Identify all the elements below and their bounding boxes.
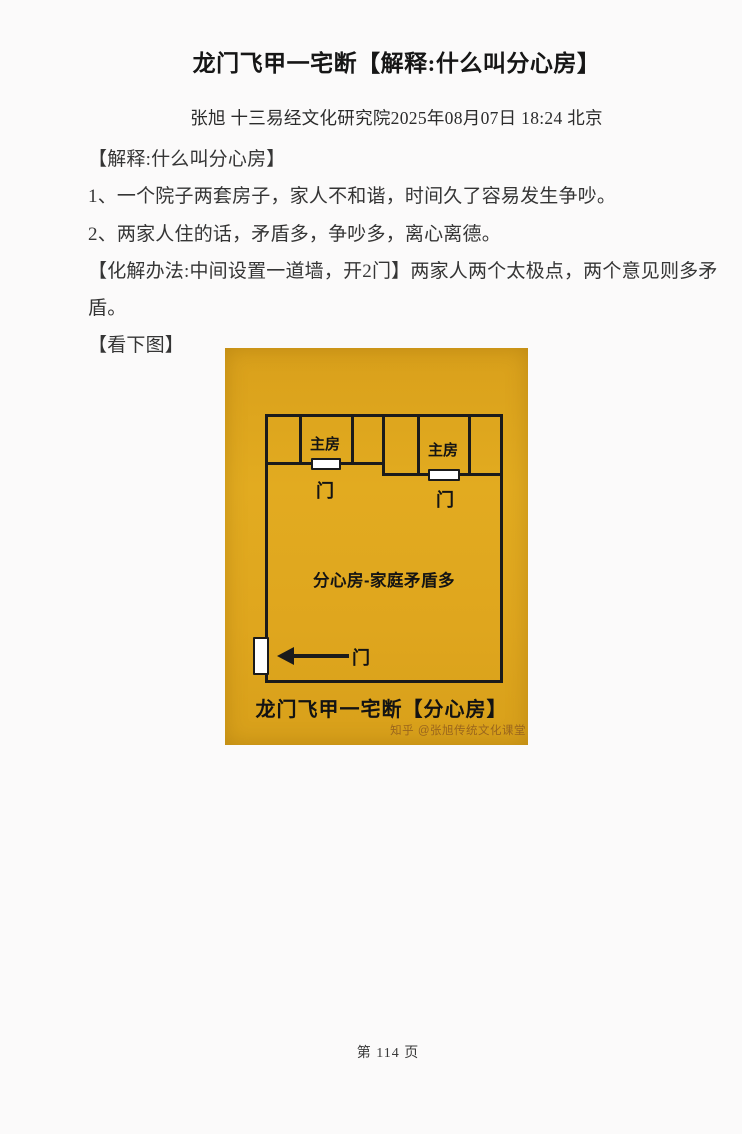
door-marker-right-room: [428, 469, 460, 481]
door-label-left: 门: [313, 477, 337, 503]
wall-center-divider: [382, 417, 385, 476]
entrance-arrow-icon: [277, 647, 294, 665]
byline: 张旭 十三易经文化研究院2025年08月07日 18:24 北京: [88, 105, 705, 130]
body-line-1: 1、一个院子两套房子，家人不和谐，时间久了容易发生争吵。: [88, 178, 718, 215]
body-text: 【解释:什么叫分心房】 1、一个院子两套房子，家人不和谐，时间久了容易发生争吵。…: [88, 141, 718, 365]
door-label-main: 门: [349, 644, 373, 670]
body-line-remedy: 【化解办法:中间设置一道墙，开2门】两家人两个太极点，两个意见则多矛盾。: [88, 253, 718, 328]
room-label-right: 主房: [416, 439, 470, 460]
courtyard-label: 分心房-家庭矛盾多: [265, 567, 503, 591]
body-line-2: 2、两家人住的话，矛盾多，争吵多，离心离德。: [88, 216, 718, 253]
door-marker-left-room: [311, 458, 341, 470]
diagram-card: 主房 主房 门 门 分心房-家庭矛盾多 门 龙门飞甲一宅断【分心房】 知乎 @张…: [225, 348, 528, 745]
watermark-text: 知乎 @张旭传统文化课堂: [390, 722, 526, 738]
page-number: 第 114 页: [70, 1042, 706, 1062]
diagram-caption: 龙门飞甲一宅断【分心房】: [235, 693, 528, 722]
body-line-explanation-header: 【解释:什么叫分心房】: [88, 141, 718, 178]
document-page: 龙门飞甲一宅断【解释:什么叫分心房】 张旭 十三易经文化研究院2025年08月0…: [0, 0, 742, 1134]
door-marker-main-entrance: [253, 637, 269, 675]
room-label-left: 主房: [298, 433, 352, 454]
entrance-arrow-shaft: [292, 654, 349, 658]
page-title: 龙门飞甲一宅断【解释:什么叫分心房】: [88, 44, 705, 78]
door-label-right: 门: [433, 486, 457, 512]
